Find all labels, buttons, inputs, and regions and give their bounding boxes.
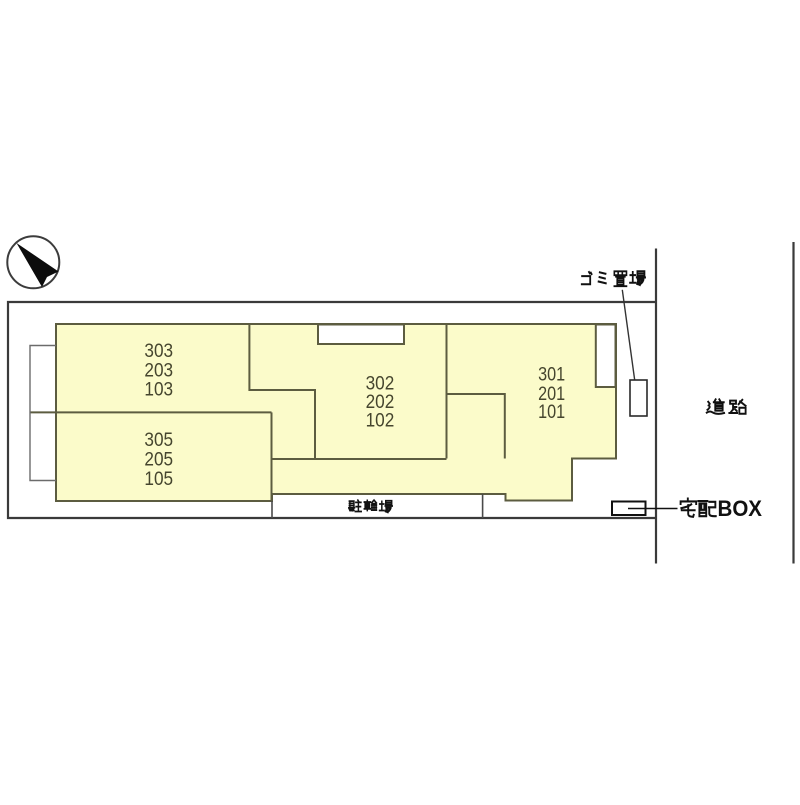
svg-text:103: 103: [144, 380, 173, 401]
svg-text:105: 105: [144, 469, 173, 490]
svg-text:301: 301: [538, 364, 565, 385]
svg-text:305: 305: [144, 430, 173, 451]
svg-text:101: 101: [538, 402, 565, 423]
svg-text:303: 303: [144, 341, 173, 362]
svg-text:102: 102: [366, 410, 395, 431]
svg-text:203: 203: [144, 360, 173, 381]
svg-text:BOX: BOX: [718, 496, 763, 521]
svg-text:205: 205: [144, 450, 173, 471]
